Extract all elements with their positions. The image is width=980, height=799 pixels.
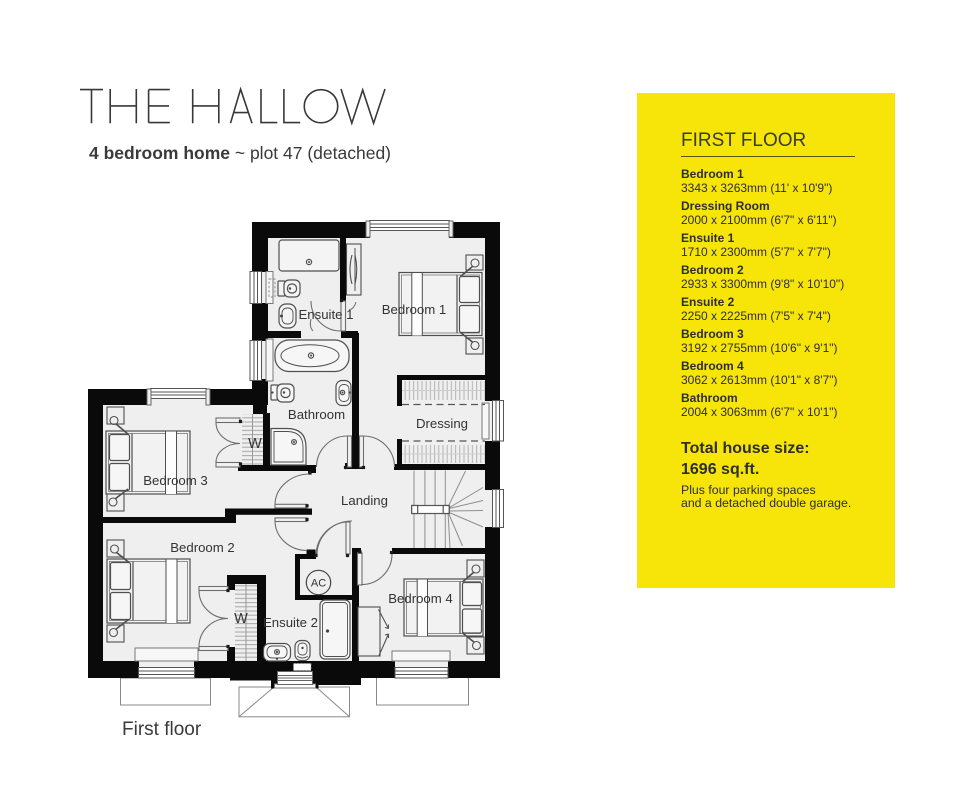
- svg-text:Bedroom 2: Bedroom 2: [170, 540, 235, 555]
- svg-text:W: W: [248, 436, 262, 452]
- svg-text:Dressing: Dressing: [416, 416, 468, 431]
- svg-text:W: W: [234, 611, 248, 627]
- svg-text:AC: AC: [311, 578, 326, 590]
- svg-text:Bathroom: Bathroom: [288, 407, 345, 422]
- svg-text:Landing: Landing: [341, 493, 388, 508]
- svg-text:Bedroom 1: Bedroom 1: [382, 302, 447, 317]
- svg-text:Bedroom 4: Bedroom 4: [388, 591, 453, 606]
- svg-text:Ensuite 2: Ensuite 2: [263, 615, 318, 630]
- svg-text:Ensuite 1: Ensuite 1: [299, 307, 354, 322]
- svg-text:Bedroom 3: Bedroom 3: [143, 473, 208, 488]
